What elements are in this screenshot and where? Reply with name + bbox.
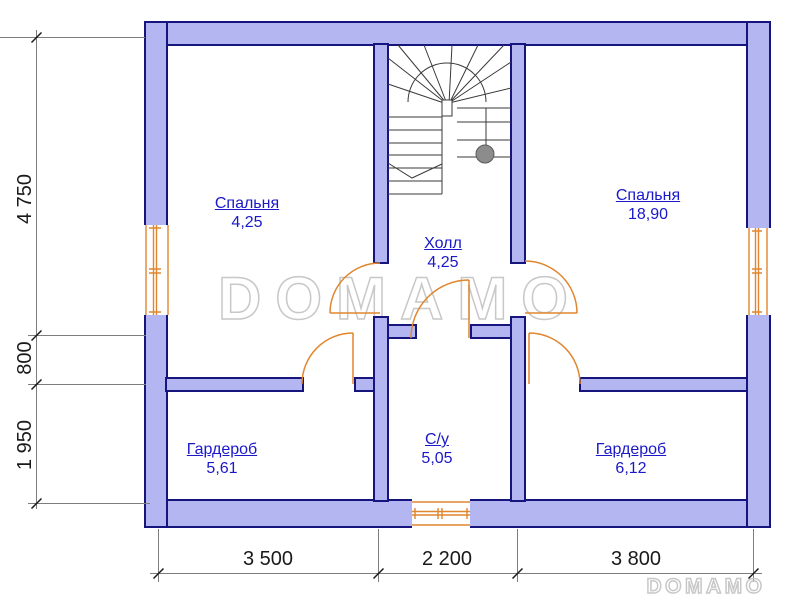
wall-bathroom-right (511, 317, 525, 501)
watermark-large: DOMAMO (218, 265, 582, 332)
wall-wardrobe-right (580, 378, 747, 391)
room-label-bedroom-right: Спальня 18,90 (578, 186, 718, 224)
room-area: 18,90 (578, 205, 718, 224)
room-area: 5,61 (152, 459, 292, 478)
room-label-bathroom: С/у 5,05 (377, 430, 497, 468)
dim-label-1950: 1 950 (13, 365, 37, 525)
room-area: 5,05 (377, 449, 497, 468)
stair-newel-circle (476, 145, 494, 163)
dim-label-3800: 3 800 (556, 547, 716, 571)
room-label-wardrobe-left: Гардероб 5,61 (152, 440, 292, 478)
dim-label-4750: 4 750 (13, 119, 37, 279)
room-name: Гардероб (152, 440, 292, 459)
door-wardrobe-left (302, 333, 353, 384)
room-name: Гардероб (561, 440, 701, 459)
stair-treads-left (388, 117, 442, 194)
floor-plan-canvas: DOMAMO (0, 0, 800, 600)
floor-plan-svg: DOMAMO (0, 0, 800, 600)
wall-bathroom-stub-right (471, 325, 511, 338)
room-area: 4,25 (383, 253, 503, 272)
room-label-bedroom-left: Спальня 4,25 (177, 194, 317, 232)
watermark-small: DOMAMO (647, 575, 766, 598)
wall-bathroom-left (374, 317, 388, 501)
wall-outer-top (145, 22, 770, 45)
window-left (141, 225, 172, 315)
dim-label-3500: 3 500 (188, 547, 348, 571)
stair-newel-post (442, 100, 452, 116)
room-name: С/у (377, 430, 497, 449)
staircase (388, 45, 511, 194)
dim-label-2200: 2 200 (367, 547, 527, 571)
wall-stairwell-left (374, 44, 388, 263)
room-name: Спальня (578, 186, 718, 205)
wall-wardrobe-left (166, 378, 303, 391)
room-name: Холл (383, 234, 503, 253)
wall-wardrobe-left-stub (355, 378, 374, 391)
stair-break-mark (388, 163, 442, 178)
room-area: 6,12 (561, 459, 701, 478)
window-bottom (412, 498, 470, 529)
wall-stairwell-right (511, 44, 525, 263)
stair-winder-fan (388, 45, 511, 104)
room-area: 4,25 (177, 213, 317, 232)
window-right (744, 228, 774, 315)
door-wardrobe-right (529, 333, 580, 384)
room-name: Спальня (177, 194, 317, 213)
room-label-hall: Холл 4,25 (383, 234, 503, 272)
room-label-wardrobe-right: Гардероб 6,12 (561, 440, 701, 478)
